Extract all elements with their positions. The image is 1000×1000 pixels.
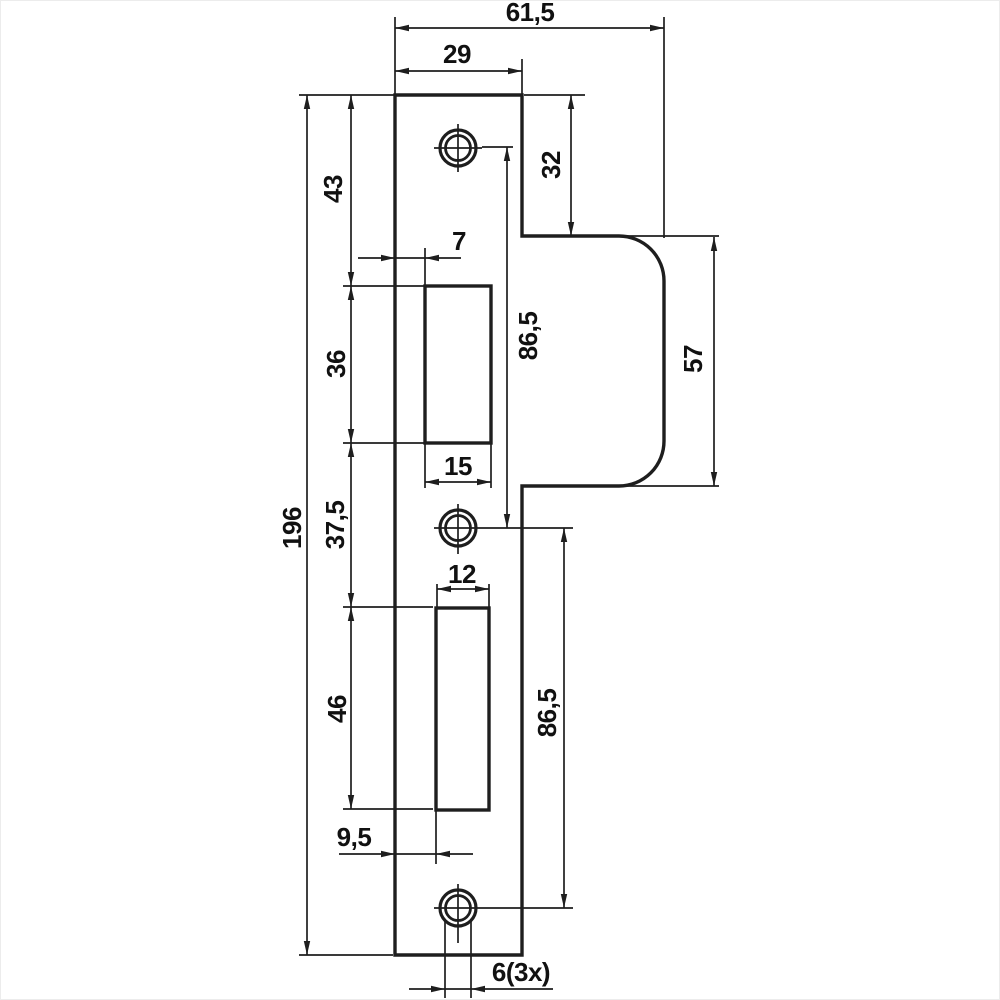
- drawing-canvas: 61,5 29 32 43 7 86,5 57 36 15 37,5 196 1…: [0, 0, 1000, 1000]
- dimension-labels: 61,5 29 32 43 7 86,5 57 36 15 37,5 196 1…: [277, 1, 708, 987]
- arrowhead-icon: [475, 586, 489, 592]
- arrowhead-icon: [348, 286, 354, 300]
- dim-label-hole-diameter: 6(3x): [492, 957, 550, 987]
- arrowhead-icon: [650, 25, 664, 31]
- dim-label-lower-hole-spacing: 86,5: [532, 689, 562, 738]
- dim-label-top-to-latch: 43: [318, 175, 348, 203]
- arrowhead-icon: [508, 68, 522, 74]
- dim-label-latch-left-offset: 7: [452, 226, 466, 256]
- arrowhead-icon: [395, 68, 409, 74]
- arrowhead-icon: [348, 429, 354, 443]
- arrowhead-icon: [395, 25, 409, 31]
- dim-label-lip-top-offset: 32: [536, 151, 566, 179]
- arrowhead-icon: [436, 851, 450, 857]
- arrowhead-icon: [348, 443, 354, 457]
- dim-label-upper-hole-spacing: 86,5: [513, 312, 543, 361]
- arrowhead-icon: [425, 479, 439, 485]
- arrowhead-icon: [561, 528, 567, 542]
- dim-label-plate-length: 196: [277, 507, 307, 549]
- arrowhead-icon: [504, 147, 510, 161]
- screw-hole-bottom: [434, 884, 482, 943]
- arrowhead-icon: [348, 593, 354, 607]
- arrowhead-icon: [568, 95, 574, 109]
- arrowhead-icon: [348, 95, 354, 109]
- screw-hole-middle: [434, 504, 482, 554]
- dim-label-lip-height: 57: [678, 345, 708, 373]
- arrowhead-icon: [431, 986, 445, 992]
- arrowhead-icon: [348, 272, 354, 286]
- arrowhead-icon: [381, 255, 395, 261]
- arrowhead-icon: [471, 986, 485, 992]
- arrowhead-icon: [304, 95, 310, 109]
- bolt-cutout: [436, 608, 489, 810]
- dim-label-bolt-width: 12: [448, 559, 476, 589]
- arrowhead-icon: [304, 941, 310, 955]
- arrowhead-icon: [711, 237, 717, 251]
- arrowhead-icon: [381, 851, 395, 857]
- dim-label-plate-width: 29: [443, 39, 471, 69]
- arrowhead-icon: [477, 479, 491, 485]
- arrowhead-icon: [504, 514, 510, 528]
- dim-label-latch-height: 36: [321, 350, 351, 378]
- latch-cutout: [425, 286, 491, 443]
- dim-label-bolt-height: 46: [322, 695, 352, 723]
- strike-plate-drawing: 61,5 29 32 43 7 86,5 57 36 15 37,5 196 1…: [1, 1, 1000, 1000]
- dim-label-total-width: 61,5: [506, 1, 555, 27]
- arrowhead-icon: [568, 222, 574, 236]
- arrowhead-icon: [561, 894, 567, 908]
- screw-hole-top: [434, 124, 482, 172]
- dim-label-bolt-left-offset: 9,5: [337, 822, 372, 852]
- arrowhead-icon: [348, 607, 354, 621]
- arrowhead-icon: [348, 795, 354, 809]
- arrowhead-icon: [711, 472, 717, 486]
- arrowhead-icon: [425, 255, 439, 261]
- dim-label-latch-width: 15: [444, 451, 472, 481]
- dim-label-cutout-gap: 37,5: [320, 501, 350, 550]
